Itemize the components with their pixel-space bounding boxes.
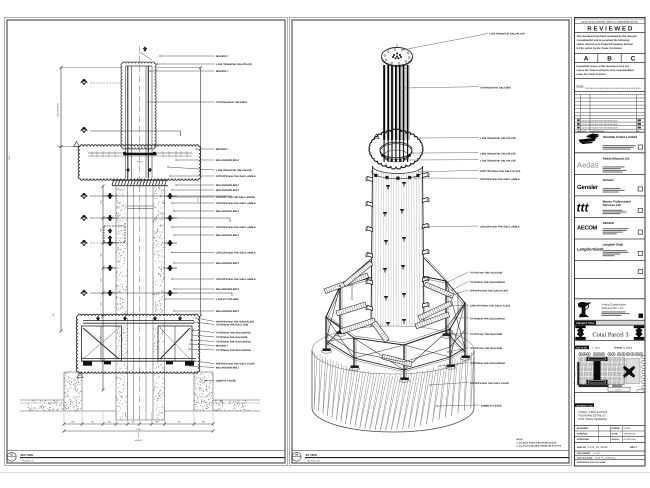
svg-text:NOTE:: NOTE:: [517, 438, 524, 441]
svg-text:DRAWN: DRAWN: [612, 427, 621, 430]
svg-text:22DEC14: 22DEC14: [581, 127, 591, 130]
svg-text:120*120*10mm THK GALV. ANGLE: 120*120*10mm THK GALV. ANGLE: [216, 226, 256, 229]
svg-text:1 : 2500: 1 : 2500: [592, 347, 600, 350]
svg-text:1. ALL BOLT SHOULD BE FIXING O: 1. ALL BOLT SHOULD BE FIXING ON SITE.: [517, 441, 558, 444]
svg-text:x 900 R.C COLUMN: x 900 R.C COLUMN: [216, 298, 239, 301]
svg-text:500: 500: [100, 278, 103, 281]
svg-text:SCALE 1:5: SCALE 1:5: [22, 460, 34, 463]
svg-text:ttt: ttt: [577, 201, 590, 215]
svg-text:FOUNTAIN DETAIL 05: FOUNTAIN DETAIL 05: [579, 415, 607, 418]
svg-text:DO NOT SCALE DRAWING. VERIFY A: DO NOT SCALE DRAWING. VERIFY ALL DIMENSI…: [581, 20, 638, 23]
svg-text:75*75*6mm THK GALV.ANGLE: 75*75*6mm THK GALV.ANGLE: [216, 349, 251, 352]
svg-text:ISSUED FOR INFORMATION: ISSUED FOR INFORMATION: [591, 120, 618, 123]
svg-text:DATE: DATE: [612, 433, 618, 436]
svg-text:3-YUE: 3-YUE: [594, 452, 601, 455]
svg-text:Aedas (Macau) Ltd.: Aedas (Macau) Ltd.: [603, 156, 631, 160]
svg-text:75*75*6mm THK GALV.ANGLE: 75*75*6mm THK GALV.ANGLE: [470, 318, 505, 321]
svg-text:300: 300: [108, 421, 111, 424]
svg-text:KEY PLAN: KEY PLAN: [576, 347, 587, 350]
svg-text:Cotai Parcel 3: Cotai Parcel 3: [592, 331, 628, 338]
svg-text:22DEC14: 22DEC14: [581, 120, 591, 123]
svg-text:02: 02: [295, 454, 298, 457]
svg-text:75*75*6mm THK GALV. SHS: 75*75*6mm THK GALV. SHS: [216, 323, 248, 326]
svg-text:PARCEL 1, LOT 2: PARCEL 1, LOT 2: [575, 367, 578, 380]
svg-text:CHECKED: CHECKED: [577, 433, 588, 436]
svg-text:Venetian Orient Limited: Venetian Orient Limited: [603, 135, 638, 139]
svg-text:500: 500: [52, 312, 55, 316]
svg-text:4-M16: 4-M16: [137, 161, 144, 164]
svg-text:14FEB2015: 14FEB2015: [624, 433, 636, 436]
svg-text:75*75*6mmTHK GALV.SHS: 75*75*6mmTHK GALV.SHS: [480, 86, 511, 89]
svg-text:Services Ltd.: Services Ltd.: [603, 203, 622, 207]
svg-text:-: -: [604, 439, 605, 441]
svg-text:Langdon Seah: Langdon Seah: [603, 242, 624, 246]
svg-text:(Macau) CO. LTD.: (Macau) CO. LTD.: [602, 306, 625, 310]
svg-text:M16 ANCHOR BOLT: M16 ANCHOR BOLT: [216, 262, 240, 265]
svg-text:M16 ANCHOR BOLT: M16 ANCHOR BOLT: [216, 366, 240, 369]
svg-text:1786 (TO SUIT): 1786 (TO SUIT): [57, 103, 60, 118]
svg-text:A: A: [584, 56, 589, 63]
svg-text:M16 ANCHOR BOLT: M16 ANCHOR BOLT: [216, 159, 240, 162]
svg-text:AECOM: AECOM: [603, 221, 615, 225]
svg-text:PARCEL 1: PARCEL 1: [615, 388, 624, 391]
svg-text:Consultant(s) and is accord: Consultant(s) and is accorded the follow…: [577, 39, 630, 42]
svg-text:300: 300: [155, 421, 158, 424]
svg-text:APPROVED: APPROVED: [577, 438, 590, 441]
svg-text:x(M)40 R.C BASE: x(M)40 R.C BASE: [216, 379, 236, 382]
svg-text:120*120*10mm THK GALV. ANGLE: 120*120*10mm THK GALV. ANGLE: [216, 202, 256, 205]
svg-text:C: C: [631, 56, 636, 63]
svg-text:75*75*6mm THK GALV.SHS: 75*75*6mm THK GALV.SHS: [216, 336, 248, 339]
svg-text:x 345 750mmTHK GALV.PLATE: x 345 750mmTHK GALV.PLATE: [480, 159, 516, 162]
svg-text:R E V I E W E D: R E V I E W E D: [587, 26, 633, 33]
svg-text:x 345 750mmTHK GALV.PLATE: x 345 750mmTHK GALV.PLATE: [489, 32, 525, 35]
svg-text:x 345 750mmTHK GALV.PLATE: x 345 750mmTHK GALV.PLATE: [216, 63, 252, 66]
svg-text:75*75*6 mm THK GALV.SHS: 75*75*6 mm THK GALV.SHS: [470, 272, 502, 275]
svg-text:SCALE 1:50: SCALE 1:50: [307, 460, 320, 463]
svg-text:120*120*10mm THK GALV. ANGLE: 120*120*10mm THK GALV. ANGLE: [216, 175, 256, 178]
svg-text:ISSUED FOR INFORMATION: ISSUED FOR INFORMATION: [591, 127, 618, 130]
svg-text:status referred to in Projec: status referred to in Project Procedure …: [577, 43, 634, 46]
svg-text:75*75*6 mm THK GALV.SHS: 75*75*6 mm THK GALV.SHS: [470, 333, 502, 336]
svg-text:3138: 3138: [136, 428, 140, 431]
svg-text:75*75*6mm THK GALV.ANGLE: 75*75*6mm THK GALV.ANGLE: [216, 331, 251, 334]
svg-text:relieve the Trade Contracto: relieve the Trade Contractor of its resp…: [577, 69, 635, 72]
svg-text:AS SHOWN: AS SHOWN: [624, 438, 636, 441]
svg-text:42(M)D R.C BASE: 42(M)D R.C BASE: [481, 405, 502, 408]
svg-text:M16 ANCHOR BOLT: M16 ANCHOR BOLT: [216, 210, 240, 213]
svg-text:120*120*10mm THK GALV. ANGLE: 120*120*10mm THK GALV. ANGLE: [480, 178, 520, 181]
svg-text:5.4 for action by the Trade Co: 5.4 for action by the Trade Contractor.: [577, 47, 623, 50]
svg-text:75*75*6mm THK GALV.ANGLE: 75*75*6mm THK GALV.ANGLE: [470, 362, 505, 365]
svg-text:1200*700*10mm THK GALV. PLATE: 1200*700*10mm THK GALV. PLATE: [470, 305, 511, 308]
svg-text:Gensler: Gensler: [577, 184, 599, 191]
svg-text:3-YUE_PC_SK090: 3-YUE_PC_SK090: [588, 446, 609, 449]
svg-text:ISSUED FOR INFORMATION: ISSUED FOR INFORMATION: [591, 123, 618, 126]
svg-text:B: B: [607, 56, 612, 63]
svg-text:3YUE_PC_SK090.dwg: 3YUE_PC_SK090.dwg: [595, 456, 615, 459]
svg-text:01: 01: [10, 454, 13, 457]
svg-text:SCALE: SCALE: [612, 438, 620, 441]
svg-text:Date :: Date :: [577, 84, 586, 88]
svg-text:LangdonSeah: LangdonSeah: [577, 247, 604, 252]
svg-text:400*200*10mm THK GALV.PLATE: 400*200*10mm THK GALV.PLATE: [470, 290, 509, 293]
svg-text:450: 450: [131, 421, 134, 424]
svg-text:844: 844: [91, 421, 94, 424]
svg-text:PUBLIC CIRCULATION: PUBLIC CIRCULATION: [579, 411, 608, 414]
svg-text:FOR STEEL DRAWING: FOR STEEL DRAWING: [579, 418, 607, 421]
svg-text:S.WSJ: S.WSJ: [624, 427, 631, 430]
svg-text:DRAWING TITLE: DRAWING TITLE: [576, 404, 593, 407]
svg-text:M16 ANCHOR BOLT: M16 ANCHOR BOLT: [216, 234, 240, 237]
svg-text:x 345 750mmTHK GALV.PLATE: x 345 750mmTHK GALV.PLATE: [480, 137, 516, 140]
svg-text:M16 ANCHOR BOLT: M16 ANCHOR BOLT: [216, 184, 240, 187]
svg-text:M16 BOLT: M16 BOLT: [216, 55, 228, 58]
svg-text:DWG NO: DWG NO: [577, 446, 587, 449]
svg-text:500: 500: [100, 228, 103, 231]
svg-text:M16 ANCHOR BOLT: M16 ANCHOR BOLT: [216, 288, 240, 291]
svg-text:CAD FILE NAME: CAD FILE NAME: [577, 456, 593, 459]
svg-text:SECTION: SECTION: [21, 453, 33, 457]
svg-text:75*75*6 mm THK GALV.SHS: 75*75*6 mm THK GALV.SHS: [470, 347, 502, 350]
svg-text:120*120*10mm THK GALV. ANGLE: 120*120*10mm THK GALV. ANGLE: [216, 278, 256, 281]
svg-text:REV C: REV C: [630, 446, 638, 449]
svg-text:3D VIEW: 3D VIEW: [306, 453, 318, 457]
svg-text:&#8597;: &#8597;: [134, 439, 143, 442]
svg-text:x 806 750mmTHK GALV.PLATE: x 806 750mmTHK GALV.PLATE: [480, 152, 516, 155]
svg-text:PROJECT TITLE: PROJECT TITLE: [576, 322, 594, 325]
svg-text:844: 844: [177, 421, 180, 424]
svg-text:This document has been reviewe: This document has been reviewed by the r…: [577, 35, 637, 38]
svg-text:22DEC14: 22DEC14: [581, 123, 591, 126]
svg-text:PARCEL 1, LOT 2: PARCEL 1, LOT 2: [614, 347, 633, 350]
svg-text:Consultant review of this: Consultant review of this document does …: [577, 65, 629, 68]
svg-text:500: 500: [100, 302, 103, 305]
svg-text:SS: SS: [75, 149, 77, 152]
svg-text:400*400*10mm THK GALV. PLATE: 400*400*10mm THK GALV. PLATE: [470, 382, 509, 385]
svg-text:2. ALL FILLET WELDED SHOULD BE: 2. ALL FILLET WELDED SHOULD BE 6mm THK.: [517, 444, 563, 447]
svg-text:75*75*6mmTHK GALV.SHS: 75*75*6mmTHK GALV.SHS: [216, 101, 247, 104]
svg-text:1240: 1240: [8, 155, 11, 160]
svg-text:Gensler: Gensler: [603, 178, 615, 182]
svg-text:-: -: [604, 434, 605, 436]
svg-text:75*75*6mm THK GALV.ANGLE: 75*75*6mm THK GALV.ANGLE: [470, 281, 505, 284]
svg-text:200: 200: [71, 421, 74, 424]
svg-text:M16 BOLT: M16 BOLT: [216, 70, 228, 73]
svg-text:REFERENCE CAD FILE NAME: REFERENCE CAD FILE NAME: [577, 461, 606, 464]
svg-text:Aedas: Aedas: [577, 161, 599, 170]
svg-text:DESIGNED: DESIGNED: [577, 427, 589, 430]
svg-text:AECOM: AECOM: [577, 225, 598, 232]
svg-text:200: 200: [202, 421, 205, 424]
svg-text:JOB NUMBER: JOB NUMBER: [577, 452, 591, 455]
svg-text:500: 500: [100, 200, 103, 203]
svg-text:500: 500: [100, 253, 103, 256]
svg-text:M16 ANCHOR BOLT: M16 ANCHOR BOLT: [216, 189, 240, 192]
svg-text:x 345 750mmTHK GALV.PLATE: x 345 750mmTHK GALV.PLATE: [216, 169, 252, 172]
svg-text:1200*700*10mm THK GALV. PLATE: 1200*700*10mm THK GALV. PLATE: [480, 170, 521, 173]
svg-text:400*400*10mm THK GALV. PLATE: 400*400*10mm THK GALV. PLATE: [216, 362, 255, 365]
svg-text:120*120*? mm THK GALV. ANGLE: 120*120*? mm THK GALV. ANGLE: [216, 196, 255, 199]
svg-text:M16 ANCHOR BOLT: M16 ANCHOR BOLT: [216, 310, 240, 313]
svg-text:120*120*10mm THK GALV. ANGLE: 120*120*10mm THK GALV. ANGLE: [480, 226, 520, 229]
svg-text:M16 BOLT: M16 BOLT: [216, 344, 228, 347]
svg-text:120*120*10mm THK GALV. ANGLE: 120*120*10mm THK GALV. ANGLE: [216, 251, 256, 254]
svg-text:M16 BOLT: M16 BOLT: [216, 148, 228, 151]
svg-text:under the Trade Contract.: under the Trade Contract.: [577, 73, 607, 76]
svg-text:3110: 3110: [197, 197, 200, 202]
svg-text:75*75*6mm THK GALV.ANGLE: 75*75*6mm THK GALV.ANGLE: [216, 340, 251, 343]
